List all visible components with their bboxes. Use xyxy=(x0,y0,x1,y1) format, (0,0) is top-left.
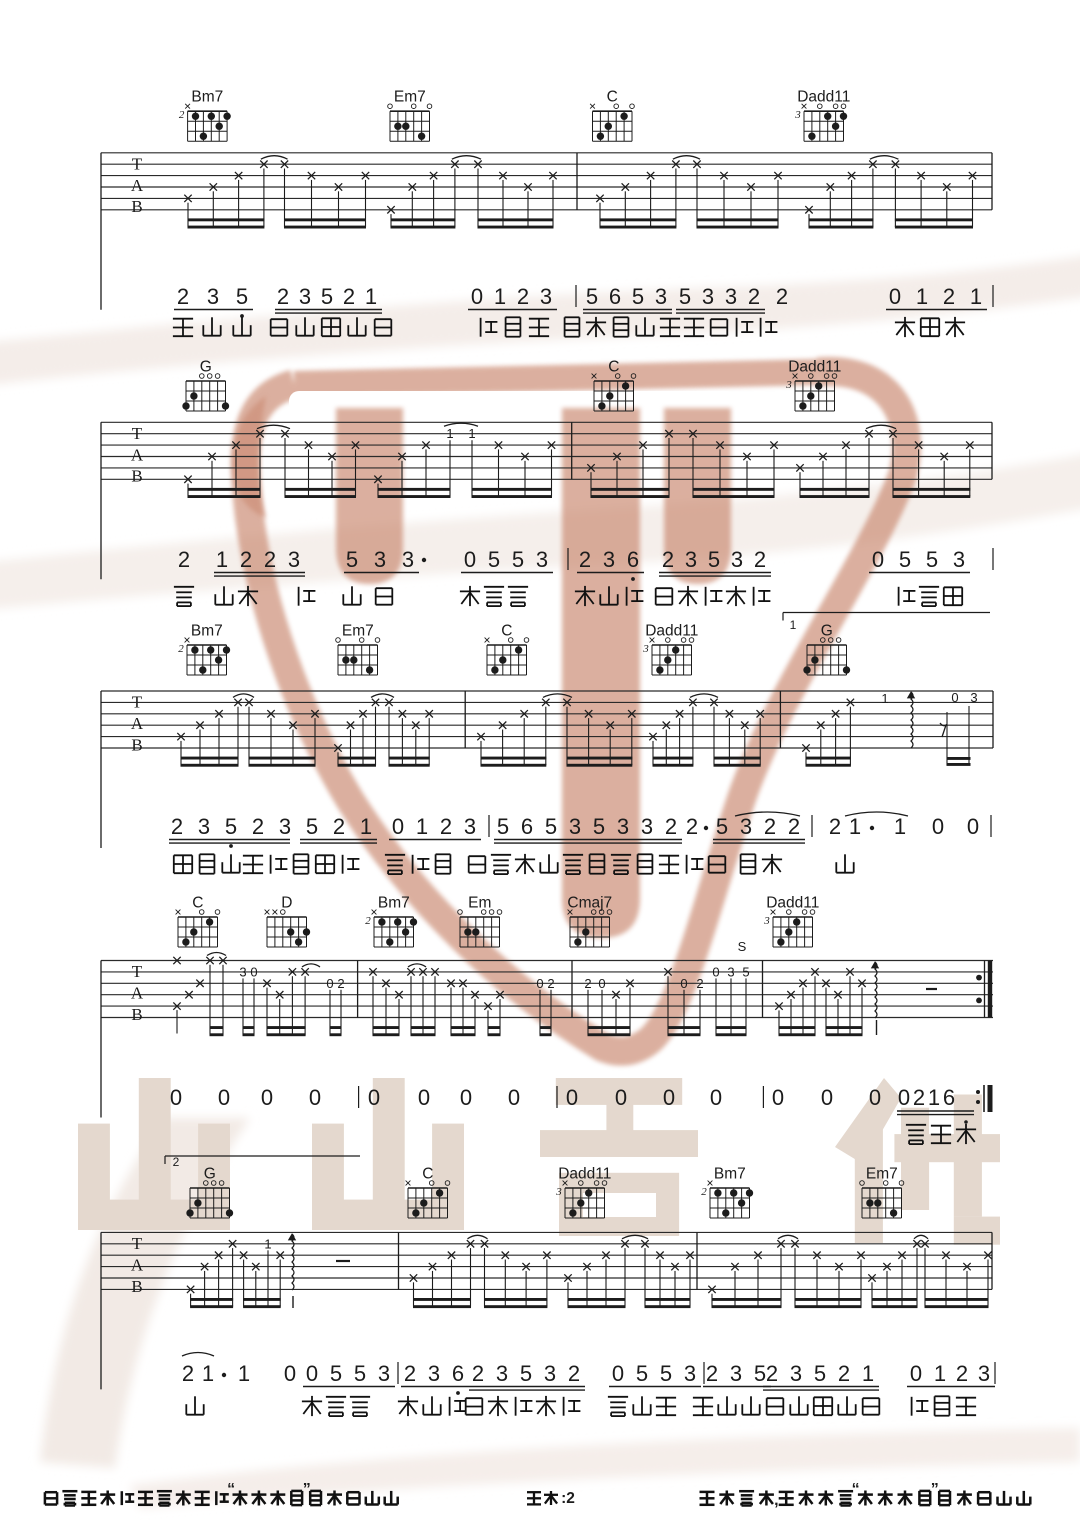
svg-text:2: 2 xyxy=(337,976,344,991)
svg-text:5: 5 xyxy=(497,814,509,839)
svg-text:Em7: Em7 xyxy=(342,623,374,640)
svg-text:2: 2 xyxy=(956,1361,968,1386)
svg-text:2: 2 xyxy=(776,284,788,309)
svg-text:T: T xyxy=(132,1234,143,1253)
svg-text:6: 6 xyxy=(609,284,621,309)
svg-text:0: 0 xyxy=(612,1361,624,1386)
svg-text:1: 1 xyxy=(862,1361,874,1386)
svg-text:3: 3 xyxy=(763,915,770,927)
svg-text:C: C xyxy=(608,359,619,376)
svg-text:3: 3 xyxy=(378,1361,390,1386)
svg-text:2: 2 xyxy=(829,814,841,839)
svg-text:0: 0 xyxy=(306,1361,318,1386)
svg-text:2: 2 xyxy=(754,547,766,572)
svg-text:3: 3 xyxy=(464,814,476,839)
svg-text:0: 0 xyxy=(951,690,958,705)
svg-text:5: 5 xyxy=(754,1361,766,1386)
svg-text:2: 2 xyxy=(264,547,276,572)
svg-text:3: 3 xyxy=(978,1361,990,1386)
svg-text:0: 0 xyxy=(566,1085,578,1110)
svg-text:T: T xyxy=(132,154,143,173)
svg-text:5: 5 xyxy=(660,1361,672,1386)
svg-text:0: 0 xyxy=(663,1085,675,1110)
svg-text:3: 3 xyxy=(970,690,977,705)
svg-text:Dadd11: Dadd11 xyxy=(788,359,841,376)
svg-text:3: 3 xyxy=(794,109,801,121)
svg-text:A: A xyxy=(131,714,144,733)
svg-text:0: 0 xyxy=(536,976,543,991)
svg-text:3: 3 xyxy=(785,379,792,391)
svg-text:3: 3 xyxy=(655,284,667,309)
svg-text:T: T xyxy=(132,693,143,712)
svg-text:2: 2 xyxy=(913,1085,925,1110)
svg-text:3: 3 xyxy=(685,547,697,572)
svg-text:,: , xyxy=(774,1492,778,1509)
svg-text:1: 1 xyxy=(494,284,506,309)
svg-text:6: 6 xyxy=(521,814,533,839)
svg-text:1: 1 xyxy=(264,1236,271,1251)
svg-text:3: 3 xyxy=(207,284,219,309)
svg-text:3: 3 xyxy=(239,964,246,979)
svg-text:1: 1 xyxy=(934,1361,946,1386)
svg-text:3: 3 xyxy=(684,1361,696,1386)
svg-text:6: 6 xyxy=(627,547,639,572)
svg-text:Dadd11: Dadd11 xyxy=(645,623,698,640)
svg-text:”: ” xyxy=(303,1481,311,1498)
svg-text:0: 0 xyxy=(471,284,483,309)
svg-text:3: 3 xyxy=(953,547,965,572)
svg-text:3: 3 xyxy=(536,547,548,572)
svg-text:G: G xyxy=(204,1166,216,1183)
svg-text:3: 3 xyxy=(555,1186,562,1198)
svg-text:5: 5 xyxy=(926,547,938,572)
svg-text:2: 2 xyxy=(838,1361,850,1386)
svg-text:5: 5 xyxy=(225,814,237,839)
svg-text:1: 1 xyxy=(238,1361,250,1386)
svg-text:5: 5 xyxy=(520,1361,532,1386)
svg-text:2: 2 xyxy=(365,915,371,927)
svg-text:C: C xyxy=(192,895,203,912)
svg-text:2: 2 xyxy=(517,284,529,309)
svg-text:1: 1 xyxy=(202,1361,214,1386)
svg-text:T: T xyxy=(132,424,143,443)
svg-text:1: 1 xyxy=(881,691,888,706)
svg-text:0: 0 xyxy=(418,1085,430,1110)
svg-text:0: 0 xyxy=(712,964,719,979)
svg-text:Em: Em xyxy=(468,895,491,912)
svg-text:0: 0 xyxy=(898,1085,910,1110)
svg-text:1: 1 xyxy=(446,426,453,441)
svg-text:B: B xyxy=(131,735,142,754)
svg-text:5: 5 xyxy=(545,814,557,839)
svg-text:5: 5 xyxy=(593,814,605,839)
svg-text:G: G xyxy=(821,623,833,640)
svg-text:Dadd11: Dadd11 xyxy=(766,895,819,912)
svg-text:1: 1 xyxy=(365,284,377,309)
svg-text:B: B xyxy=(131,197,142,216)
svg-text:5: 5 xyxy=(306,814,318,839)
svg-text:B: B xyxy=(131,1005,142,1024)
svg-text:2: 2 xyxy=(333,814,345,839)
svg-text:6: 6 xyxy=(452,1361,464,1386)
svg-text:A: A xyxy=(131,176,144,195)
svg-text:2: 2 xyxy=(252,814,264,839)
svg-text:3: 3 xyxy=(569,814,581,839)
svg-text:C: C xyxy=(422,1166,433,1183)
svg-text:2: 2 xyxy=(182,1361,194,1386)
svg-text:0: 0 xyxy=(680,976,687,991)
svg-text:3: 3 xyxy=(428,1361,440,1386)
svg-text:2: 2 xyxy=(579,547,591,572)
svg-text:2: 2 xyxy=(277,284,289,309)
svg-text:B: B xyxy=(131,467,142,486)
svg-text:2: 2 xyxy=(665,814,677,839)
svg-text:0: 0 xyxy=(772,1085,784,1110)
svg-text:1: 1 xyxy=(416,814,428,839)
svg-text:5: 5 xyxy=(636,1361,648,1386)
svg-text:T: T xyxy=(132,962,143,981)
svg-text:2: 2 xyxy=(788,814,800,839)
svg-text:5: 5 xyxy=(512,547,524,572)
svg-text:0: 0 xyxy=(615,1085,627,1110)
svg-text:C: C xyxy=(501,623,512,640)
svg-text:2: 2 xyxy=(472,1361,484,1386)
svg-text:5: 5 xyxy=(716,814,728,839)
svg-text:5: 5 xyxy=(236,284,248,309)
svg-text:2: 2 xyxy=(766,1361,778,1386)
svg-text:D: D xyxy=(281,895,292,912)
svg-text:2: 2 xyxy=(584,976,591,991)
svg-text:3: 3 xyxy=(402,547,414,572)
svg-text:3: 3 xyxy=(642,643,649,655)
svg-text:0: 0 xyxy=(932,814,944,839)
svg-text:5: 5 xyxy=(742,964,749,979)
svg-text:2: 2 xyxy=(171,814,183,839)
svg-text:5: 5 xyxy=(632,284,644,309)
svg-text:2: 2 xyxy=(547,976,554,991)
svg-text:3: 3 xyxy=(617,814,629,839)
svg-text:0: 0 xyxy=(218,1085,230,1110)
svg-text:Bm7: Bm7 xyxy=(378,895,410,912)
svg-text:3: 3 xyxy=(731,547,743,572)
svg-text::2: :2 xyxy=(561,1490,575,1507)
svg-text:Cmaj7: Cmaj7 xyxy=(567,895,612,912)
svg-text:“: “ xyxy=(852,1481,860,1498)
svg-text:0: 0 xyxy=(170,1085,182,1110)
svg-text:0: 0 xyxy=(392,814,404,839)
svg-text:0: 0 xyxy=(872,547,884,572)
svg-text:1: 1 xyxy=(928,1085,940,1110)
svg-text:1: 1 xyxy=(468,426,475,441)
svg-text:2: 2 xyxy=(178,547,190,572)
svg-text:1: 1 xyxy=(916,284,928,309)
svg-text:5: 5 xyxy=(814,1361,826,1386)
svg-text:3: 3 xyxy=(725,284,737,309)
svg-text:5: 5 xyxy=(679,284,691,309)
svg-text:2: 2 xyxy=(706,1361,718,1386)
svg-text:0: 0 xyxy=(508,1085,520,1110)
svg-text:2: 2 xyxy=(440,814,452,839)
svg-text:2: 2 xyxy=(177,284,189,309)
svg-text:Bm7: Bm7 xyxy=(714,1166,746,1183)
svg-text:A: A xyxy=(131,984,144,1003)
svg-text:S: S xyxy=(738,939,747,954)
svg-text:0: 0 xyxy=(889,284,901,309)
svg-text:B: B xyxy=(131,1277,142,1296)
svg-text:0: 0 xyxy=(368,1085,380,1110)
svg-text:5: 5 xyxy=(330,1361,342,1386)
svg-text:“: “ xyxy=(227,1481,235,1498)
svg-text:5: 5 xyxy=(321,284,333,309)
svg-text:3: 3 xyxy=(740,814,752,839)
svg-text:A: A xyxy=(131,445,144,464)
svg-text:2: 2 xyxy=(568,1361,580,1386)
svg-text:0: 0 xyxy=(261,1085,273,1110)
svg-text:3: 3 xyxy=(727,964,734,979)
svg-text:0: 0 xyxy=(309,1085,321,1110)
svg-text:2: 2 xyxy=(764,814,776,839)
svg-text:3: 3 xyxy=(279,814,291,839)
svg-text:2: 2 xyxy=(240,547,252,572)
svg-text:0: 0 xyxy=(710,1085,722,1110)
svg-text:3: 3 xyxy=(374,547,386,572)
svg-text:Em7: Em7 xyxy=(394,89,426,106)
svg-text:Bm7: Bm7 xyxy=(191,623,223,640)
svg-text:2: 2 xyxy=(662,547,674,572)
svg-text:3: 3 xyxy=(299,284,311,309)
svg-text:2: 2 xyxy=(173,1155,180,1169)
svg-text:2: 2 xyxy=(404,1361,416,1386)
svg-text:2: 2 xyxy=(179,109,185,121)
svg-text:C: C xyxy=(607,89,618,106)
svg-text:1: 1 xyxy=(360,814,372,839)
svg-text:3: 3 xyxy=(288,547,300,572)
svg-text:2: 2 xyxy=(701,1186,707,1198)
svg-text:2: 2 xyxy=(943,284,955,309)
svg-text:1: 1 xyxy=(849,814,861,839)
svg-text:0: 0 xyxy=(967,814,979,839)
svg-text:6: 6 xyxy=(943,1085,955,1110)
svg-text:0: 0 xyxy=(821,1085,833,1110)
svg-text:1: 1 xyxy=(894,814,906,839)
svg-text:3: 3 xyxy=(544,1361,556,1386)
svg-text:5: 5 xyxy=(708,547,720,572)
svg-text:0: 0 xyxy=(464,547,476,572)
svg-text:5: 5 xyxy=(488,547,500,572)
svg-text:3: 3 xyxy=(641,814,653,839)
svg-text:2: 2 xyxy=(343,284,355,309)
svg-text:0: 0 xyxy=(910,1361,922,1386)
svg-text:G: G xyxy=(200,359,212,376)
svg-text:1: 1 xyxy=(970,284,982,309)
svg-text:0: 0 xyxy=(326,976,333,991)
svg-text:0: 0 xyxy=(250,964,257,979)
svg-text:0: 0 xyxy=(598,976,605,991)
svg-text:3: 3 xyxy=(790,1361,802,1386)
svg-text:5: 5 xyxy=(899,547,911,572)
svg-text:1: 1 xyxy=(216,547,228,572)
svg-text:3: 3 xyxy=(496,1361,508,1386)
svg-text:A: A xyxy=(131,1255,144,1274)
svg-text:3: 3 xyxy=(540,284,552,309)
svg-text:1: 1 xyxy=(790,618,797,632)
svg-text:3: 3 xyxy=(603,547,615,572)
svg-text:2: 2 xyxy=(686,814,698,839)
svg-text:3: 3 xyxy=(198,814,210,839)
svg-text:3: 3 xyxy=(702,284,714,309)
svg-text:5: 5 xyxy=(354,1361,366,1386)
svg-text:Dadd11: Dadd11 xyxy=(797,89,850,106)
svg-text:3: 3 xyxy=(730,1361,742,1386)
svg-text:5: 5 xyxy=(346,547,358,572)
svg-text:Dadd11: Dadd11 xyxy=(558,1166,611,1183)
svg-text:2: 2 xyxy=(178,643,184,655)
svg-text:”: ” xyxy=(931,1481,939,1498)
svg-text:Bm7: Bm7 xyxy=(191,89,223,106)
svg-text:2: 2 xyxy=(748,284,760,309)
svg-text:0: 0 xyxy=(284,1361,296,1386)
svg-text:5: 5 xyxy=(586,284,598,309)
svg-text:0: 0 xyxy=(460,1085,472,1110)
svg-text:2: 2 xyxy=(696,976,703,991)
svg-text:Em7: Em7 xyxy=(866,1166,898,1183)
svg-text:0: 0 xyxy=(869,1085,881,1110)
